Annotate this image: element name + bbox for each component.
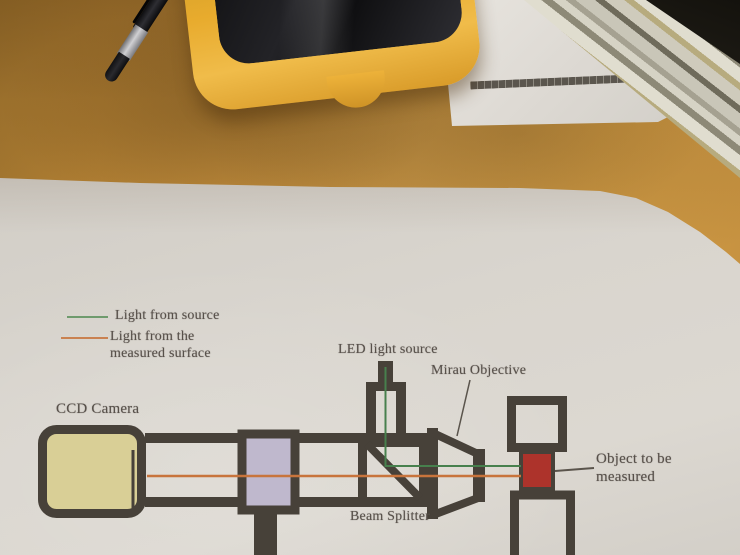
ccd-camera-box: [43, 430, 142, 514]
measured-object-box: [521, 452, 553, 489]
object-leader-line: [555, 468, 594, 471]
objective-back-plate: [427, 428, 438, 519]
mirau-leader-line: [457, 380, 470, 436]
mount-top-frame: [512, 401, 563, 448]
ccd-camera-label: CCD Camera: [56, 401, 139, 418]
beam-splitter-diagonal: [367, 444, 420, 498]
lens-stand-post: [254, 509, 277, 555]
led-light-source-label: LED light source: [338, 341, 438, 358]
object-to-be-measured-label: Object to be measured: [596, 450, 672, 486]
legend-label-source: Light from source: [115, 307, 219, 324]
led-housing-left: [366, 384, 376, 434]
lens-block: [242, 434, 295, 510]
led-housing-right: [396, 384, 406, 434]
photo-scene: Light from source Light from the measure…: [0, 0, 740, 555]
legend-label-measured: Light from the measured surface: [110, 328, 211, 362]
mount-bottom-frame: [515, 495, 571, 555]
objective-bottom-slope: [433, 498, 478, 515]
mirau-objective-label: Mirau Objective: [431, 362, 526, 379]
objective-top-slope: [433, 433, 478, 454]
beam-splitter-label: Beam Splitter: [350, 508, 430, 525]
